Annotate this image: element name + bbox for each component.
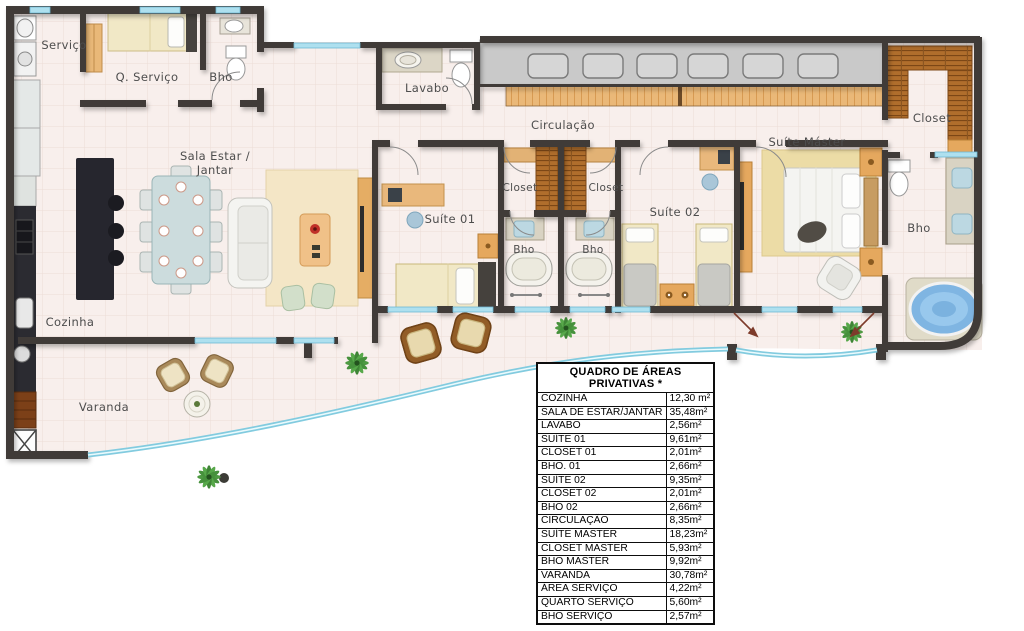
toilet — [890, 172, 908, 196]
lavabo-toilet-tank — [450, 50, 472, 62]
area-row-name: SUÍTE MASTER — [537, 528, 666, 542]
plant-pot — [219, 473, 229, 483]
area-row-value: 18,23m² — [666, 528, 714, 542]
area-row-name: SUÍTE 01 — [537, 433, 666, 447]
area-row-value: 9,61m² — [666, 433, 714, 447]
area-row: CLOSET MASTER5,93m² — [537, 542, 714, 556]
pillow — [626, 228, 654, 242]
area-row: QUARTO SERVIÇO5,60m² — [537, 596, 714, 610]
sink — [952, 168, 972, 188]
nightstand — [660, 284, 694, 306]
window — [570, 307, 605, 312]
window — [612, 307, 650, 312]
area-row: BHO SERVIÇO2,57m² — [537, 610, 714, 624]
label-bho-master: Bho — [907, 221, 930, 235]
headboard — [864, 178, 878, 246]
area-row-name: CLOSET MASTER — [537, 542, 666, 556]
headboard — [478, 262, 496, 310]
stool — [108, 250, 124, 266]
area-row-value: 2,01m² — [666, 447, 714, 461]
area-row-value: 2,66m² — [666, 501, 714, 515]
closet-shelf — [586, 148, 616, 162]
window — [294, 43, 360, 48]
label-varanda: Varanda — [79, 400, 129, 414]
ac-unit — [688, 54, 728, 78]
toilet-tank — [888, 160, 910, 172]
area-row: LAVABO2,56m² — [537, 420, 714, 434]
area-row: BHO MASTER9,92m² — [537, 556, 714, 570]
area-row-value: 5,60m² — [666, 596, 714, 610]
tv-screen — [360, 206, 364, 272]
kitchen-sink — [16, 298, 33, 328]
tv-screen — [740, 182, 744, 250]
area-row-value: 30,78m² — [666, 569, 714, 583]
label-sala-line1: Sala Estar / — [180, 149, 250, 163]
area-row: SUÍTE 029,35m² — [537, 474, 714, 488]
cooktop — [16, 220, 33, 254]
ac-unit — [528, 54, 568, 78]
glass-partition — [935, 152, 977, 157]
area-row-name: BHO 02 — [537, 501, 666, 515]
wardrobe — [886, 70, 908, 118]
areas-table: QUADRO DE ÁREAS PRIVATIVAS * COZINHA12,3… — [536, 362, 715, 625]
stool — [108, 195, 124, 211]
area-row: SUÍTE MASTER18,23m² — [537, 528, 714, 542]
blanket — [624, 264, 656, 306]
area-row-value: 5,93m² — [666, 542, 714, 556]
label-closet01: Closet — [502, 182, 537, 194]
area-row-name: CLOSET 02 — [537, 488, 666, 502]
service-bed-headboard — [186, 12, 197, 52]
sliding-glass-door — [195, 338, 276, 343]
label-suite01: Suíte 01 — [425, 212, 476, 226]
wardrobe — [886, 46, 972, 70]
areas-table-body: COZINHA12,30 m²SALA DE ESTAR/JANTAR35,48… — [537, 393, 714, 625]
window — [30, 7, 50, 13]
area-row-value: 12,30 m² — [666, 393, 714, 407]
areas-table-header-row: QUADRO DE ÁREAS PRIVATIVAS * — [537, 363, 714, 393]
area-row-value: 9,92m² — [666, 556, 714, 570]
wardrobe — [564, 146, 586, 212]
washing-machine-door — [18, 52, 32, 66]
area-row: BHO. 012,66m² — [537, 460, 714, 474]
area-row-name: QUARTO SERVIÇO — [537, 596, 666, 610]
label-servico: Serviço — [41, 38, 86, 52]
ac-unit — [743, 54, 783, 78]
area-row: VARANDA30,78m² — [537, 569, 714, 583]
area-row-name: BHO SERVIÇO — [537, 610, 666, 624]
area-row-value: 2,01m² — [666, 488, 714, 502]
stool — [108, 223, 124, 239]
sideboard-divider — [678, 86, 682, 106]
floorplan-svg: Serviço Q. Serviço Bho Lavabo Circulação… — [0, 0, 1024, 631]
window — [453, 307, 493, 312]
round-sink — [14, 346, 30, 362]
armchair-green — [280, 285, 305, 312]
area-row-name: SUÍTE 02 — [537, 474, 666, 488]
label-suite-master: Suíte Máster — [768, 135, 845, 149]
service-bath-sink — [225, 20, 243, 32]
closet-shelf — [504, 148, 536, 162]
wardrobe — [948, 70, 972, 146]
window — [140, 7, 180, 13]
window — [216, 7, 240, 13]
label-q-servico: Q. Serviço — [116, 70, 179, 84]
area-row-name: COZINHA — [537, 393, 666, 407]
service-bed-pillow — [168, 17, 184, 47]
label-closet02: Closet — [588, 182, 623, 194]
area-row-name: CLOSET 01 — [537, 447, 666, 461]
areas-table-title: QUADRO DE ÁREAS PRIVATIVAS * — [537, 363, 714, 393]
lavabo-toilet — [452, 63, 470, 87]
floorplan-canvas: Serviço Q. Serviço Bho Lavabo Circulação… — [0, 0, 1024, 631]
wardrobe — [536, 146, 558, 212]
pillow — [842, 214, 860, 248]
desk-chair — [702, 174, 718, 190]
area-row-name: BHO MASTER — [537, 556, 666, 570]
area-row: COZINHA12,30 m² — [537, 393, 714, 407]
area-row-name: CIRCULAÇÃO — [537, 515, 666, 529]
blanket — [698, 264, 730, 306]
area-row-value: 2,66m² — [666, 460, 714, 474]
sink — [952, 214, 972, 234]
counter — [13, 176, 36, 206]
area-row-name: ÁREA SERVIÇO — [537, 583, 666, 597]
ac-unit — [798, 54, 838, 78]
label-bho01: Bho — [513, 244, 534, 256]
area-row-name: LAVABO — [537, 420, 666, 434]
sliding-glass-door — [294, 338, 334, 343]
laundry-tank-basin — [17, 19, 33, 37]
pillow — [700, 228, 728, 242]
sideboard — [506, 86, 886, 106]
area-row-name: BHO. 01 — [537, 460, 666, 474]
area-row: CIRCULAÇÃO8,35m² — [537, 515, 714, 529]
label-circulacao: Circulação — [531, 118, 595, 132]
label-cozinha: Cozinha — [46, 315, 95, 329]
window — [515, 307, 550, 312]
area-row-value: 2,56m² — [666, 420, 714, 434]
ac-unit — [583, 54, 623, 78]
area-row: CLOSET 022,01m² — [537, 488, 714, 502]
monitor — [388, 188, 402, 202]
area-row: ÁREA SERVIÇO4,22m² — [537, 583, 714, 597]
area-row: CLOSET 012,01m² — [537, 447, 714, 461]
area-row-value: 8,35m² — [666, 515, 714, 529]
pillow — [842, 174, 860, 208]
pillow — [456, 268, 474, 304]
area-row: SUÍTE 019,61m² — [537, 433, 714, 447]
area-row: BHO 022,66m² — [537, 501, 714, 515]
label-lavabo: Lavabo — [405, 81, 449, 95]
window — [388, 307, 437, 312]
desk-chair — [407, 212, 423, 228]
area-row-value: 35,48m² — [666, 406, 714, 420]
area-row-value: 2,57m² — [666, 610, 714, 624]
ac-unit — [637, 54, 677, 78]
armchair-green — [310, 283, 335, 310]
label-bho02: Bho — [582, 244, 603, 256]
coffee-table — [300, 214, 330, 266]
label-suite02: Suíte 02 — [650, 205, 701, 219]
area-row: SALA DE ESTAR/JANTAR35,48m² — [537, 406, 714, 420]
area-row-name: VARANDA — [537, 569, 666, 583]
plant — [197, 465, 221, 489]
window — [762, 307, 797, 312]
kitchen-wall-column — [13, 16, 40, 458]
service-toilet-tank — [226, 46, 246, 58]
area-row-name: SALA DE ESTAR/JANTAR — [537, 406, 666, 420]
label-bho-servico: Bho — [209, 70, 232, 84]
window — [833, 307, 862, 312]
monitor — [718, 150, 730, 164]
label-closet-master: Closet — [913, 111, 951, 125]
area-row-value: 4,22m² — [666, 583, 714, 597]
label-sala-line2: Jantar — [196, 163, 233, 177]
area-row-value: 9,35m² — [666, 474, 714, 488]
remote — [312, 253, 320, 258]
remote — [312, 245, 320, 250]
